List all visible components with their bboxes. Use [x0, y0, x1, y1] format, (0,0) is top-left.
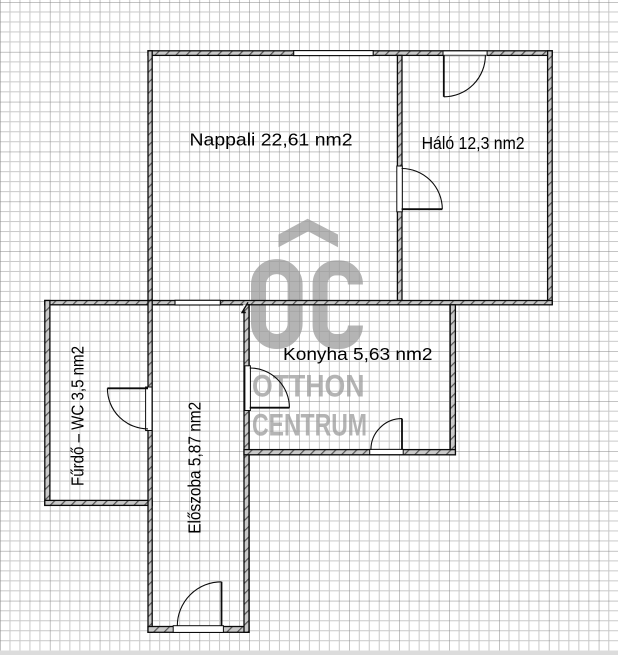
svg-text:CENTRUM: CENTRUM — [252, 407, 367, 443]
svg-text:Nappali 22,61 nm2: Nappali 22,61 nm2 — [190, 130, 353, 150]
svg-text:Fűrdő – WC 3,5 nm2: Fűrdő – WC 3,5 nm2 — [67, 346, 87, 486]
svg-text:Háló 12,3 nm2: Háló 12,3 nm2 — [422, 133, 525, 153]
svg-text:Előszoba 5,87 nm2: Előszoba 5,87 nm2 — [184, 402, 204, 534]
svg-text:Konyha 5,63 nm2: Konyha 5,63 nm2 — [283, 344, 433, 364]
